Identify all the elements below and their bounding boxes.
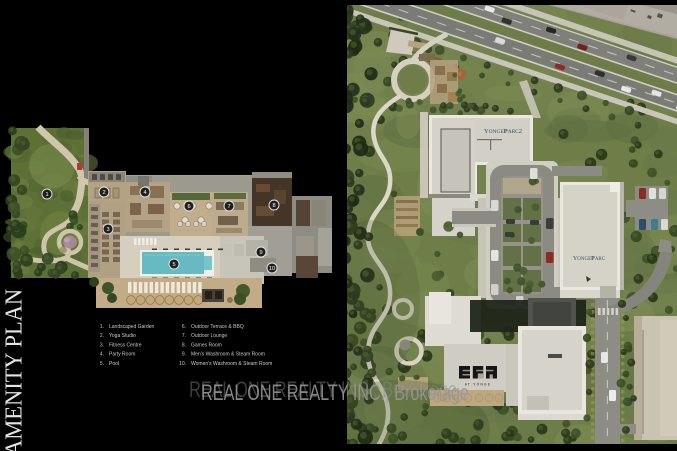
svg-text:Fitness Centre: Fitness Centre bbox=[109, 342, 142, 348]
svg-text:7: 7 bbox=[227, 204, 230, 210]
svg-text:6.: 6. bbox=[182, 324, 186, 330]
svg-text:5.: 5. bbox=[100, 361, 104, 367]
svg-text:Women’s Washroom & Steam Room: Women’s Washroom & Steam Room bbox=[191, 361, 272, 367]
svg-text:Outdoor Terrace & BBQ: Outdoor Terrace & BBQ bbox=[191, 324, 244, 330]
svg-text:Landscaped Garden: Landscaped Garden bbox=[109, 324, 155, 330]
svg-text:10.: 10. bbox=[179, 361, 186, 367]
svg-text:YONGEPARC2: YONGEPARC2 bbox=[484, 128, 522, 135]
svg-text:2: 2 bbox=[102, 190, 105, 196]
svg-text:1.: 1. bbox=[100, 324, 104, 330]
svg-text:10: 10 bbox=[269, 266, 275, 272]
svg-text:4.: 4. bbox=[100, 352, 104, 358]
svg-text:2.: 2. bbox=[100, 333, 104, 339]
svg-text:Party Room: Party Room bbox=[109, 352, 135, 358]
svg-text:Games Room: Games Room bbox=[191, 342, 222, 348]
svg-text:8.: 8. bbox=[182, 342, 186, 348]
svg-text:AMENITY PLAN: AMENITY PLAN bbox=[1, 289, 28, 451]
svg-text:9.: 9. bbox=[182, 352, 186, 358]
svg-text:Men’s Washroom & Steam Room: Men’s Washroom & Steam Room bbox=[191, 352, 265, 358]
svg-text:YONGEPARC: YONGEPARC bbox=[573, 256, 606, 262]
svg-text:Yoga Studio: Yoga Studio bbox=[109, 333, 136, 339]
svg-text:3: 3 bbox=[106, 227, 109, 233]
svg-text:3.: 3. bbox=[100, 342, 104, 348]
svg-text:8: 8 bbox=[272, 203, 275, 209]
svg-text:6: 6 bbox=[187, 204, 190, 210]
svg-text:1: 1 bbox=[45, 192, 48, 198]
svg-text:9: 9 bbox=[259, 250, 262, 256]
svg-text:7.: 7. bbox=[182, 333, 186, 339]
svg-text:REAL ONE REALTY INC., Brokerag: REAL ONE REALTY INC., Brokerage bbox=[201, 380, 469, 405]
svg-text:4: 4 bbox=[143, 190, 146, 196]
svg-text:5: 5 bbox=[172, 262, 175, 268]
svg-text:Outdoor Lounge: Outdoor Lounge bbox=[191, 333, 227, 339]
svg-text:Pool: Pool bbox=[109, 361, 119, 367]
